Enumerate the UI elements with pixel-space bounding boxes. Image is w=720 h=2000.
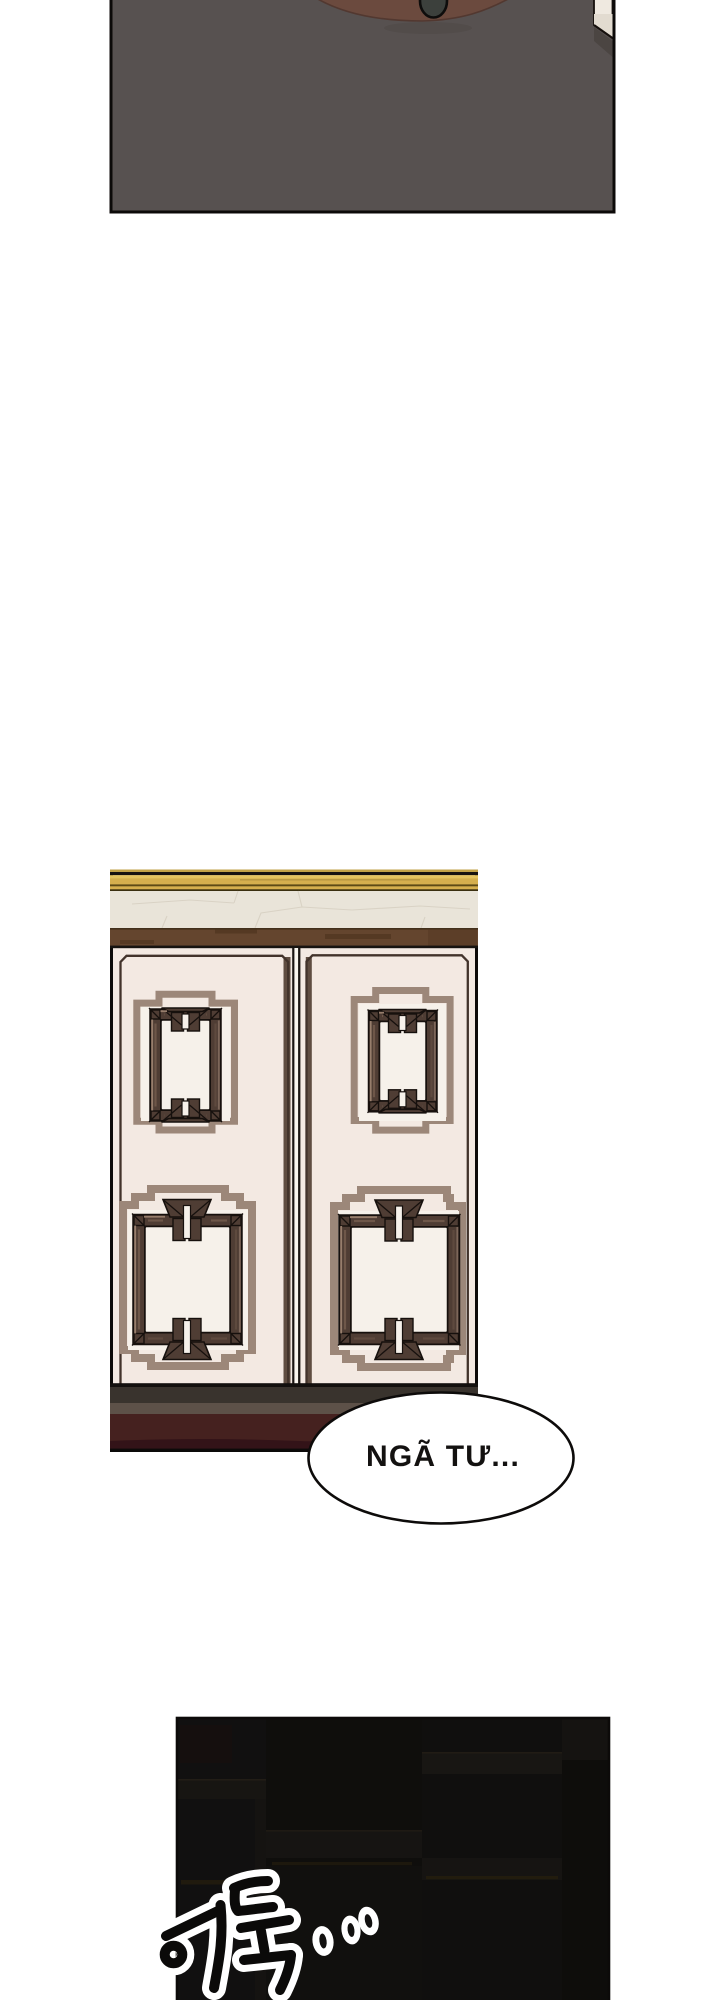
svg-text:NGÃ TƯ...: NGÃ TƯ... bbox=[366, 1439, 520, 1473]
